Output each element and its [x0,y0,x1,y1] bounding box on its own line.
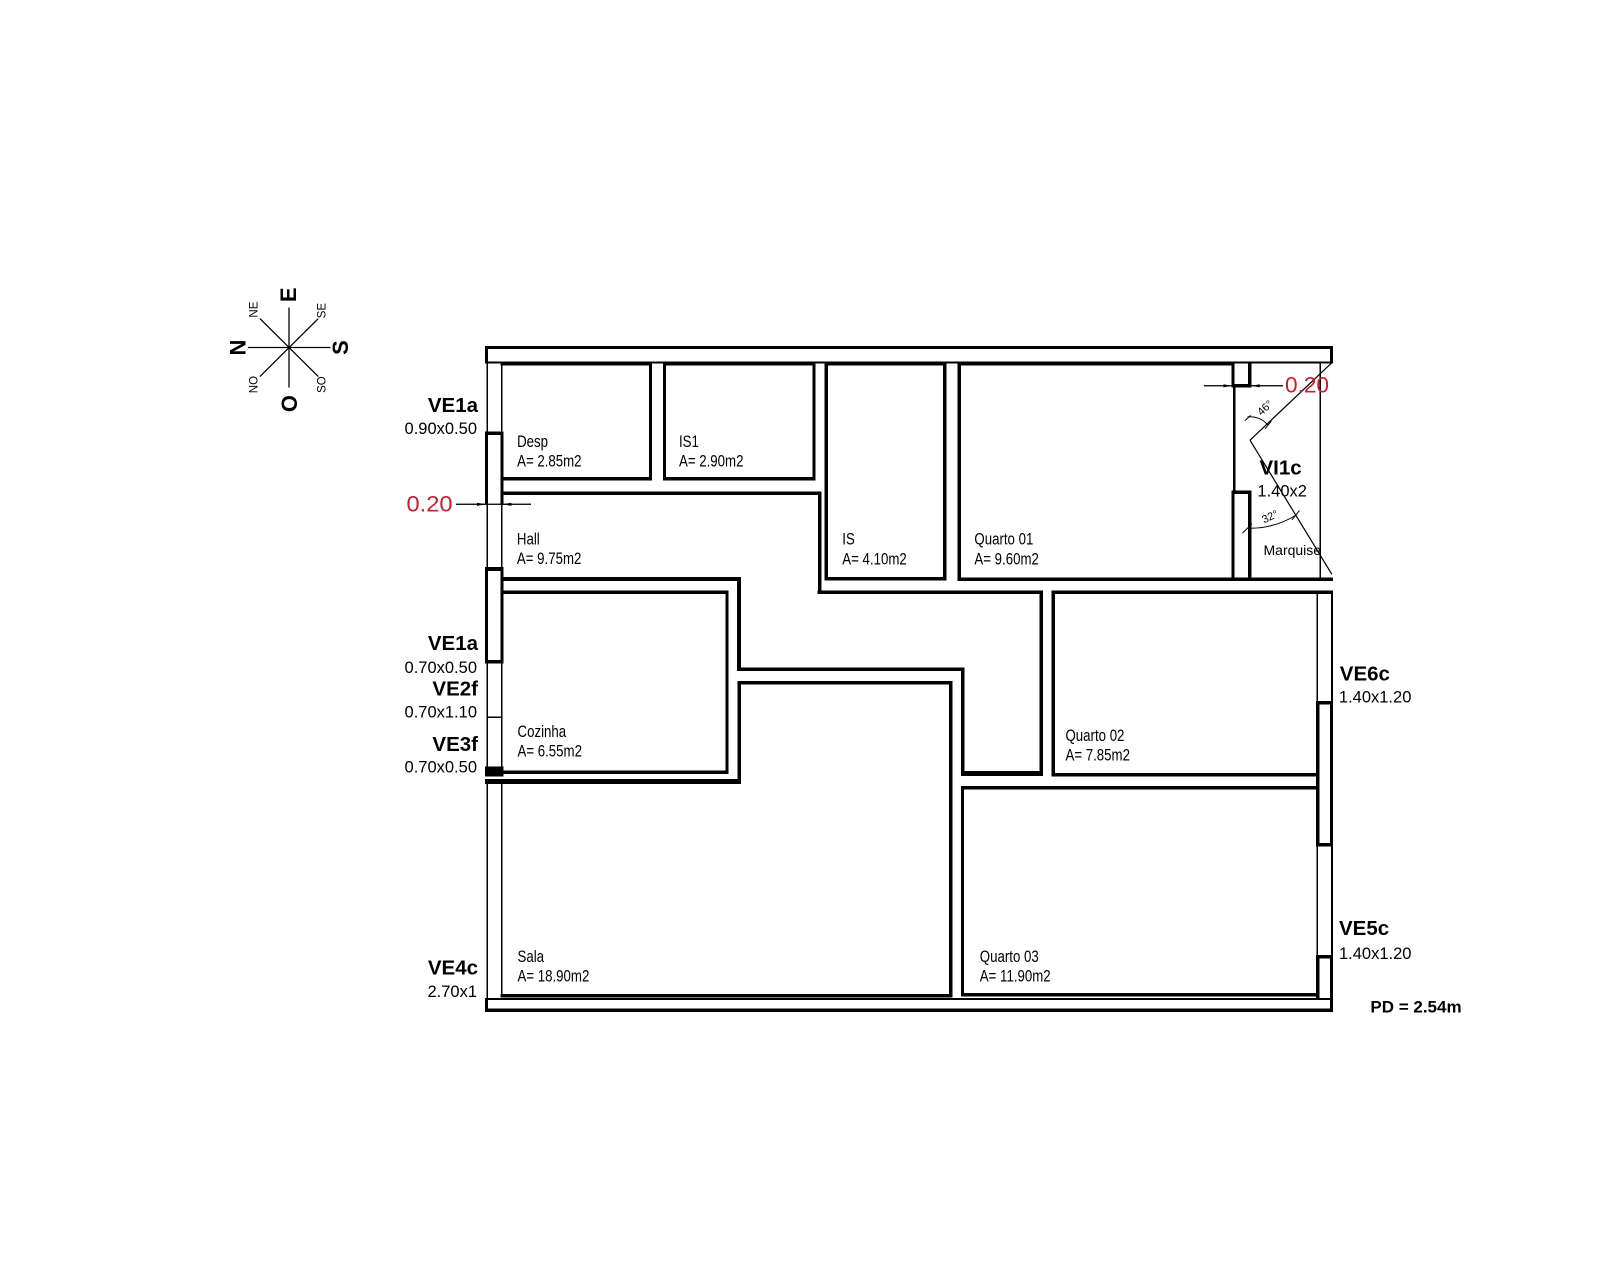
svg-text:SE: SE [316,303,328,319]
svg-text:1.40x1.20: 1.40x1.20 [1339,689,1411,707]
svg-text:0.20: 0.20 [407,492,453,517]
svg-text:VE2f: VE2f [432,678,478,701]
svg-text:0.70x0.50: 0.70x0.50 [405,758,477,776]
svg-text:A= 9.75m2: A= 9.75m2 [517,550,581,569]
svg-text:1.40x1.20: 1.40x1.20 [1339,945,1411,963]
svg-text:2.70x1: 2.70x1 [427,983,477,1001]
svg-text:N: N [226,340,251,356]
svg-text:0.20: 0.20 [1285,373,1329,398]
svg-text:O: O [277,395,302,412]
svg-text:A= 7.85m2: A= 7.85m2 [1066,746,1130,765]
svg-text:VE6c: VE6c [1340,662,1390,685]
svg-text:VE1a: VE1a [428,394,479,417]
svg-text:IS: IS [842,530,855,549]
svg-text:A= 9.60m2: A= 9.60m2 [974,550,1038,569]
svg-text:VE3f: VE3f [432,733,478,756]
svg-text:Quarto 01: Quarto 01 [974,530,1033,549]
svg-text:Sala: Sala [518,947,545,966]
svg-text:VE5c: VE5c [1339,917,1389,940]
svg-text:VE4c: VE4c [428,957,478,980]
svg-text:VI1c: VI1c [1260,456,1302,479]
svg-text:A= 4.10m2: A= 4.10m2 [842,550,906,569]
svg-text:1.40x2: 1.40x2 [1257,482,1307,500]
svg-text:Cozinha: Cozinha [518,723,567,742]
svg-text:SO: SO [316,376,328,393]
svg-text:E: E [276,287,301,302]
svg-text:Marquise: Marquise [1264,542,1322,558]
svg-text:A= 2.90m2: A= 2.90m2 [679,452,743,471]
svg-text:Desp: Desp [517,432,548,451]
svg-text:A= 2.85m2: A= 2.85m2 [517,452,581,471]
svg-text:Hall: Hall [517,530,540,549]
svg-text:NO: NO [249,376,261,393]
svg-text:A= 6.55m2: A= 6.55m2 [518,742,582,761]
svg-text:0.90x0.50: 0.90x0.50 [405,420,477,438]
svg-text:Quarto 02: Quarto 02 [1066,727,1125,746]
svg-text:S: S [328,340,353,355]
svg-text:IS1: IS1 [679,432,699,451]
svg-text:0.70x0.50: 0.70x0.50 [405,659,477,677]
svg-text:A= 18.90m2: A= 18.90m2 [518,967,590,986]
svg-text:Quarto 03: Quarto 03 [980,947,1039,966]
svg-text:NE: NE [249,301,261,317]
svg-text:VE1a: VE1a [428,632,479,655]
svg-text:PD = 2.54m: PD = 2.54m [1370,998,1461,1017]
svg-text:0.70x1.10: 0.70x1.10 [405,703,477,721]
svg-text:A= 11.90m2: A= 11.90m2 [980,967,1051,986]
